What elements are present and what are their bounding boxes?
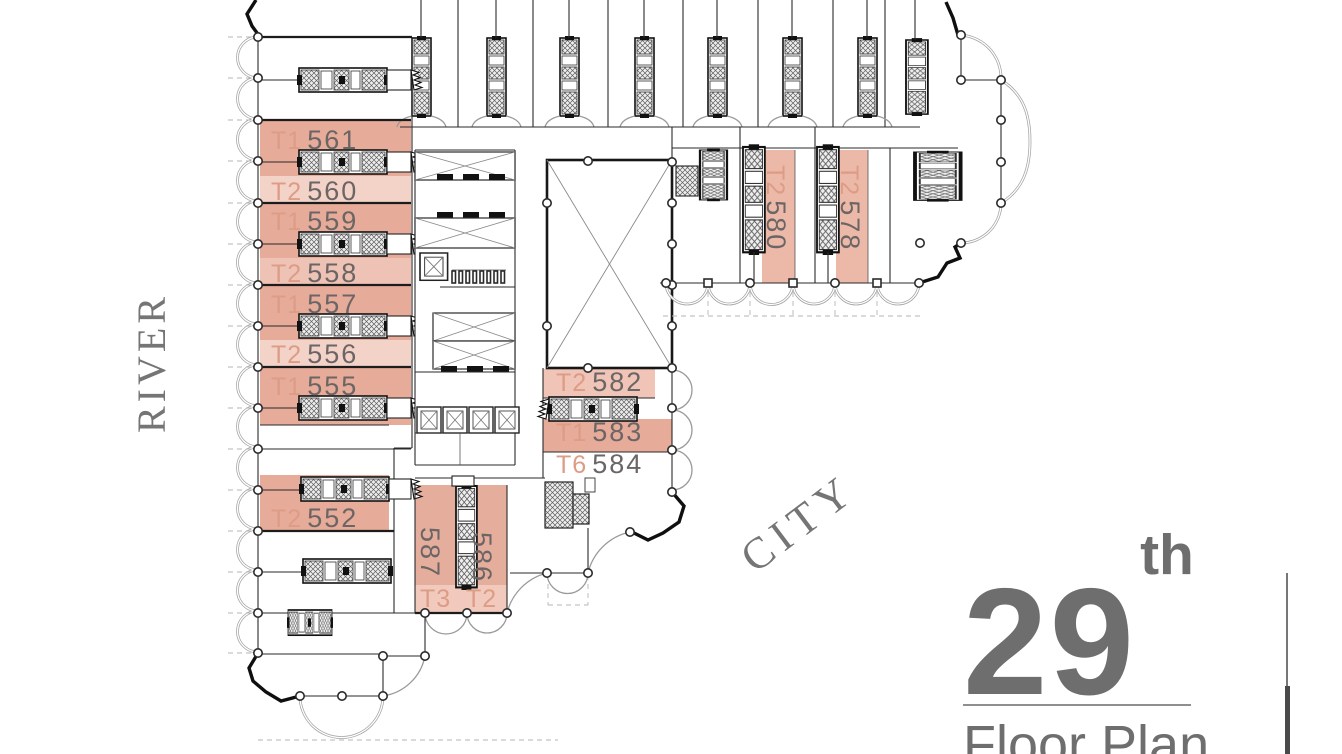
unit-label-583: T1583 [556,417,643,447]
right-divider-thin [1286,573,1288,688]
unit-label-561: T1561 [271,125,358,155]
unit-label-559: T1559 [271,206,358,236]
core-stairs-elevators [415,150,519,465]
ordinal-suffix: th [1140,523,1194,587]
unit-label-580: T2580 [761,165,791,251]
top-service-strips [397,0,928,127]
floor-number: 29th [963,566,1198,718]
unit-label-578: T2578 [835,165,865,251]
unit-label-582: T2582 [556,367,643,397]
unit-type-586: T2 [466,585,497,613]
atrium-void [547,160,672,368]
city-label: CITY [732,464,866,582]
unit-label-552: T2552 [271,503,358,533]
unit-label-584: T6584 [556,449,643,479]
unit-label-558: T2558 [271,258,358,288]
unit-number-587: 587 [415,527,445,578]
river-label: RIVER [129,293,174,433]
right-divider-thick [1285,686,1290,754]
floor-plan-page: T1561 T2560 T1559 T2558 T1557 T2556 T155… [0,0,1342,754]
unit-label-560: T2560 [271,176,358,206]
floor-plan-caption: Floor Plan [963,714,1198,754]
unit-type-587: T3 [420,585,451,613]
title-block: 29th Floor Plan [963,566,1198,754]
unit-label-556: T2556 [271,339,358,369]
unit-number-586: 586 [467,532,497,583]
unit-label-557: T1557 [271,289,358,319]
unit-label-555: T1555 [271,371,358,401]
